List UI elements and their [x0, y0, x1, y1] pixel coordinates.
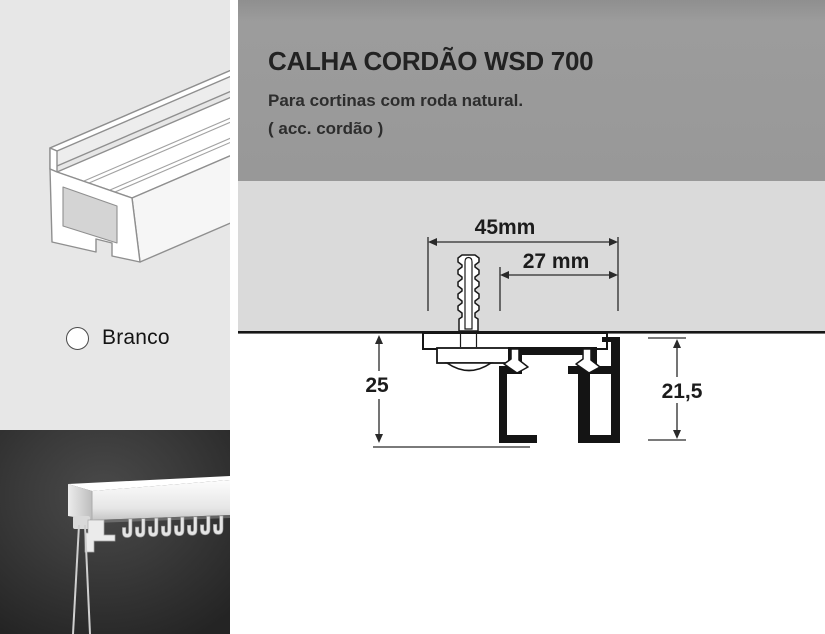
- product-photo-panel: [0, 430, 230, 634]
- dim-label-45mm: 45mm: [475, 216, 536, 239]
- catalog-page: Branco: [0, 0, 825, 634]
- product-photo: [0, 430, 230, 634]
- dim-label-25: 25: [365, 374, 389, 397]
- page-title: CALHA CORDÃO WSD 700: [268, 46, 805, 77]
- product-subtitle: Para cortinas com roda natural.: [268, 91, 805, 111]
- photo-cord-bracket: [73, 516, 90, 529]
- product-note: ( acc. cordão ): [268, 119, 805, 139]
- color-option-row: Branco: [66, 326, 170, 350]
- product-render-panel: Branco: [0, 0, 230, 430]
- color-swatch-branco: [66, 327, 89, 350]
- dim-label-27mm: 27 mm: [523, 250, 590, 273]
- technical-diagram: 45mm 27 mm 25 21,5: [238, 181, 825, 634]
- mounting-plate: [423, 333, 607, 349]
- spec-panel: CALHA CORDÃO WSD 700 Para cortinas com r…: [238, 0, 825, 634]
- dim-label-21-5: 21,5: [662, 380, 703, 403]
- anchor-passthrough: [461, 333, 477, 348]
- color-swatch-label: Branco: [102, 326, 170, 350]
- profile-3d-render: [0, 0, 230, 430]
- product-header: CALHA CORDÃO WSD 700 Para cortinas com r…: [238, 0, 825, 181]
- photo-track: [68, 476, 230, 523]
- rail-lip-front-face: [50, 148, 57, 172]
